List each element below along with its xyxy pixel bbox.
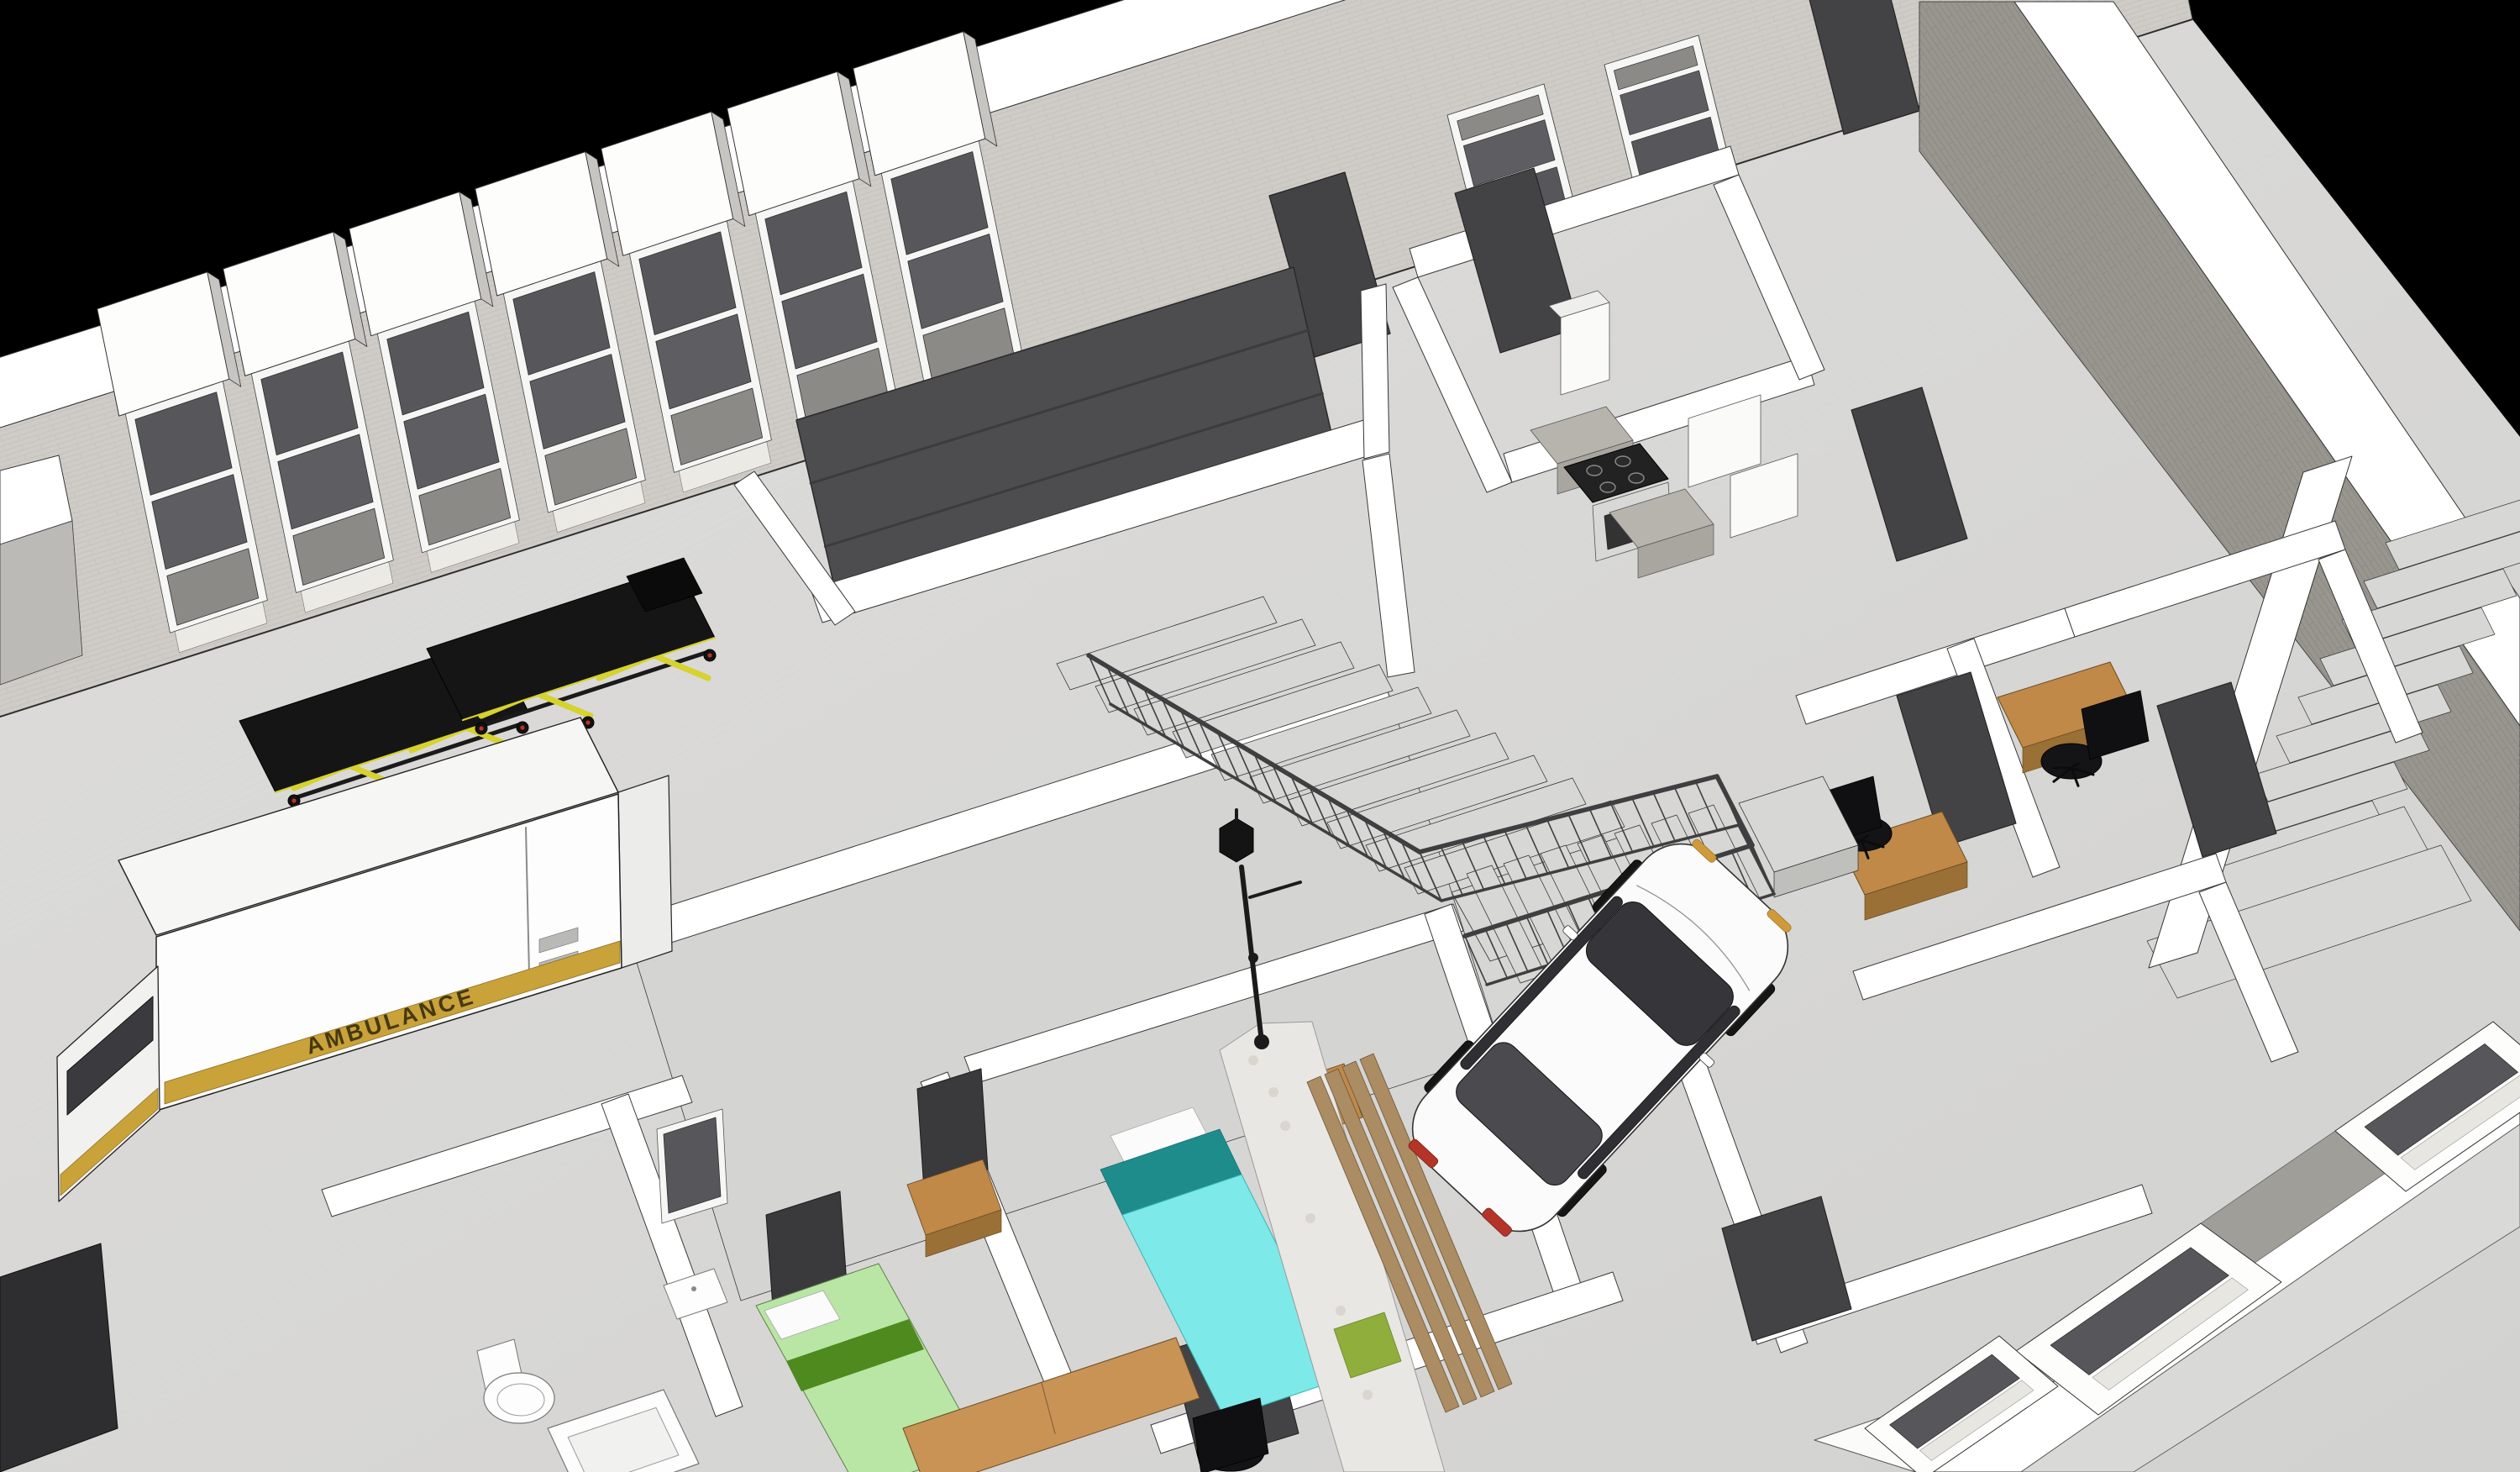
stretcher-wheel-hub	[585, 720, 590, 724]
garage-door-jamb-right	[1361, 284, 1389, 459]
scene-canvas: AMBULANCE	[0, 0, 2520, 1472]
stretcher-wheel-hub	[479, 726, 483, 730]
stove-burner	[1587, 465, 1602, 476]
lamp-collar	[1248, 953, 1258, 963]
marble-speck	[1280, 1121, 1290, 1131]
stretcher-wheel-hub	[291, 798, 296, 802]
stove-burner	[1600, 482, 1615, 492]
stove-burner	[1629, 473, 1644, 483]
marble-speck	[1248, 1055, 1258, 1065]
render-viewport[interactable]: AMBULANCE	[0, 0, 2520, 1472]
ambulance-rear	[618, 775, 672, 968]
stretcher-wheel-hub	[520, 725, 524, 729]
stove-burner	[1615, 456, 1630, 466]
tall-cabinet	[1561, 302, 1609, 395]
sink-tap	[691, 1286, 696, 1291]
marble-speck	[1336, 1306, 1346, 1316]
marble-speck	[1362, 1390, 1373, 1400]
marble-speck	[1268, 1087, 1278, 1097]
bathroom-window-glass	[664, 1117, 721, 1213]
stretcher-wheel-hub	[707, 653, 711, 657]
marble-speck	[1305, 1213, 1315, 1223]
